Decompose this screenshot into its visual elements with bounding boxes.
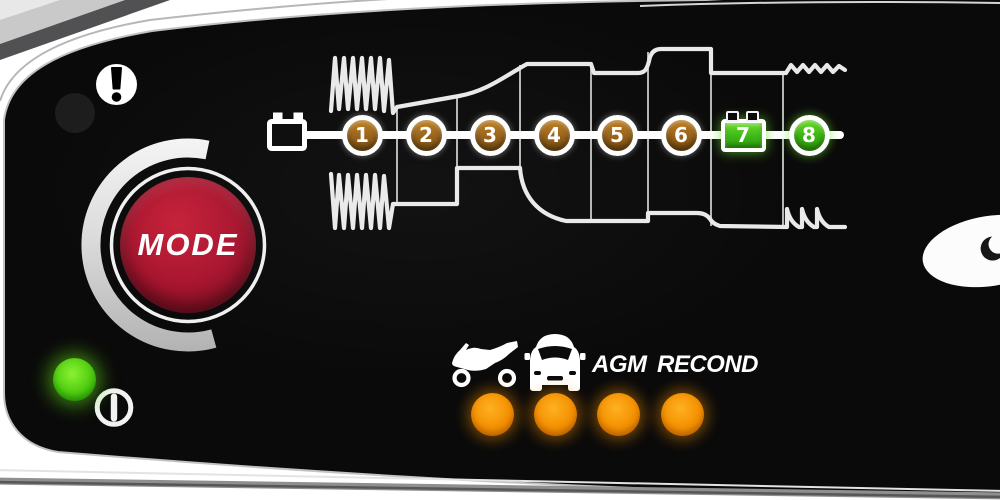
stage-node-4: 4 <box>534 115 575 156</box>
stage-node-6: 6 <box>661 115 702 156</box>
stage-node-8: 8 <box>789 115 830 156</box>
stage-node-2: 2 <box>406 115 447 156</box>
stage-node-7: 7 <box>721 119 766 152</box>
agm-label: AGM <box>592 351 647 379</box>
warning-icon <box>96 64 137 105</box>
stage-node-5-label: 5 <box>610 123 624 147</box>
battery-terminal <box>726 111 739 122</box>
stage-node-7-label: 7 <box>736 123 750 147</box>
stage-node-4-label: 4 <box>547 123 561 147</box>
mode-led-motorcycle <box>471 393 514 436</box>
stage-node-8-label: 8 <box>802 123 816 147</box>
mode-led-recond <box>661 393 704 436</box>
stage-node-6-label: 6 <box>674 123 688 147</box>
stage-node-3-label: 3 <box>483 123 497 147</box>
recond-label: RECOND <box>657 351 758 379</box>
stage-node-1-label: 1 <box>355 123 369 147</box>
mode-button[interactable]: MODE <box>120 177 256 313</box>
mode-led-agm <box>597 393 640 436</box>
stage-node-3: 3 <box>470 115 511 156</box>
stage-node-1: 1 <box>342 115 383 156</box>
charger-front-panel: 1 2 3 4 5 6 7 8 MODE AGM RECOND <box>0 0 1000 500</box>
error-led <box>55 93 95 133</box>
stage-node-5: 5 <box>597 115 638 156</box>
mode-led-car <box>534 393 577 436</box>
battery-terminal <box>746 111 759 122</box>
mode-button-label: MODE <box>138 227 239 263</box>
stage-node-2-label: 2 <box>419 123 433 147</box>
power-led <box>53 358 96 401</box>
